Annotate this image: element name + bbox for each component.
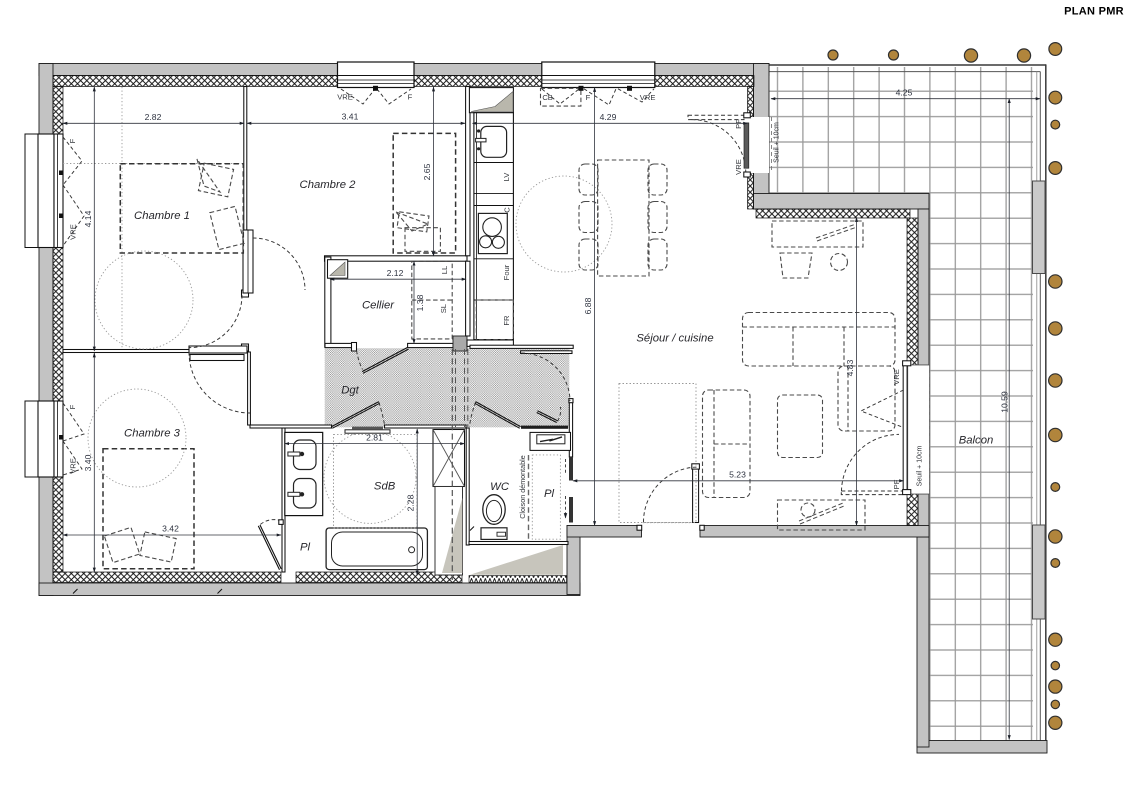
svg-text:VRE: VRE bbox=[337, 93, 353, 102]
svg-text:1.38: 1.38 bbox=[415, 294, 425, 311]
svg-text:Cloison démontable: Cloison démontable bbox=[518, 455, 527, 519]
svg-text:CB: CB bbox=[542, 93, 553, 102]
svg-text:PF: PF bbox=[734, 119, 743, 129]
svg-text:Seuil + 10cm: Seuil + 10cm bbox=[917, 446, 924, 487]
svg-text:4.29: 4.29 bbox=[600, 112, 617, 122]
svg-text:2.12: 2.12 bbox=[387, 268, 404, 278]
svg-text:PLAN PMR: PLAN PMR bbox=[1064, 6, 1124, 18]
svg-text:3.42: 3.42 bbox=[162, 524, 179, 534]
svg-text:VRE: VRE bbox=[734, 159, 743, 175]
svg-text:F: F bbox=[408, 93, 413, 102]
svg-text:Dgt: Dgt bbox=[341, 385, 359, 397]
svg-text:C: C bbox=[503, 207, 512, 213]
svg-text:Chambre 2: Chambre 2 bbox=[300, 179, 357, 191]
svg-text:Balcon: Balcon bbox=[959, 435, 994, 447]
svg-text:Séjour / cuisine: Séjour / cuisine bbox=[636, 333, 713, 345]
svg-text:Seuil + 10cm: Seuil + 10cm bbox=[774, 122, 781, 163]
svg-text:10.59: 10.59 bbox=[1000, 391, 1010, 413]
svg-text:VRE: VRE bbox=[69, 224, 78, 240]
svg-text:WC: WC bbox=[490, 481, 510, 493]
svg-text:SdB: SdB bbox=[374, 481, 396, 493]
svg-text:4.14: 4.14 bbox=[83, 210, 93, 227]
svg-text:F: F bbox=[68, 404, 77, 409]
svg-text:LV: LV bbox=[502, 172, 511, 182]
svg-text:LL: LL bbox=[440, 266, 449, 274]
svg-text:Pl: Pl bbox=[300, 542, 311, 554]
svg-text:6.88: 6.88 bbox=[583, 297, 593, 314]
svg-text:2.82: 2.82 bbox=[145, 112, 162, 122]
svg-text:Four: Four bbox=[502, 264, 511, 280]
svg-text:3.41: 3.41 bbox=[342, 112, 359, 122]
svg-text:Chambre 3: Chambre 3 bbox=[124, 428, 181, 440]
svg-text:F: F bbox=[586, 93, 591, 102]
svg-text:5.23: 5.23 bbox=[729, 469, 746, 479]
svg-text:3.40: 3.40 bbox=[83, 454, 93, 471]
svg-text:FR: FR bbox=[502, 315, 511, 326]
svg-text:2.81: 2.81 bbox=[366, 433, 383, 443]
svg-text:VRE: VRE bbox=[69, 458, 78, 474]
svg-text:SL: SL bbox=[439, 304, 448, 313]
svg-text:Cellier: Cellier bbox=[362, 300, 395, 312]
svg-text:4.83: 4.83 bbox=[845, 359, 855, 376]
svg-text:F: F bbox=[68, 138, 77, 143]
svg-text:2.28: 2.28 bbox=[406, 494, 416, 511]
svg-text:Pl: Pl bbox=[544, 488, 555, 500]
svg-text:2.65: 2.65 bbox=[422, 163, 432, 180]
svg-text:4.25: 4.25 bbox=[896, 88, 913, 98]
svg-text:VRE: VRE bbox=[640, 93, 656, 102]
svg-text:PF: PF bbox=[892, 479, 901, 489]
svg-text:Chambre 1: Chambre 1 bbox=[134, 210, 190, 222]
svg-text:VRE: VRE bbox=[892, 369, 901, 385]
